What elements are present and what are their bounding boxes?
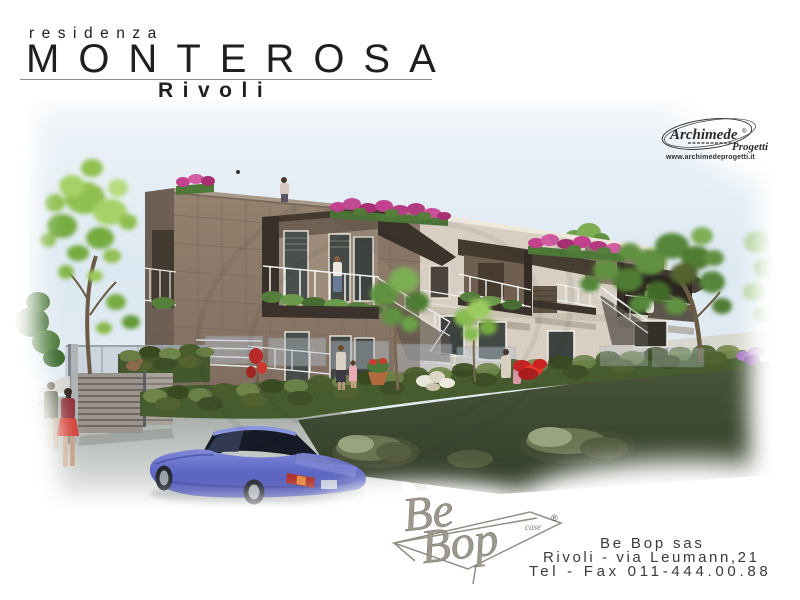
svg-text:Progetti: Progetti bbox=[732, 141, 769, 153]
svg-text:www.archimedeprogetti.it: www.archimedeprogetti.it bbox=[665, 154, 755, 161]
svg-text:Bop: Bop bbox=[418, 512, 501, 574]
svg-text:Archimede: Archimede bbox=[669, 127, 738, 143]
svg-text:®: ® bbox=[551, 513, 558, 523]
svg-text:case: case bbox=[525, 522, 541, 532]
svg-text:®: ® bbox=[742, 128, 747, 135]
